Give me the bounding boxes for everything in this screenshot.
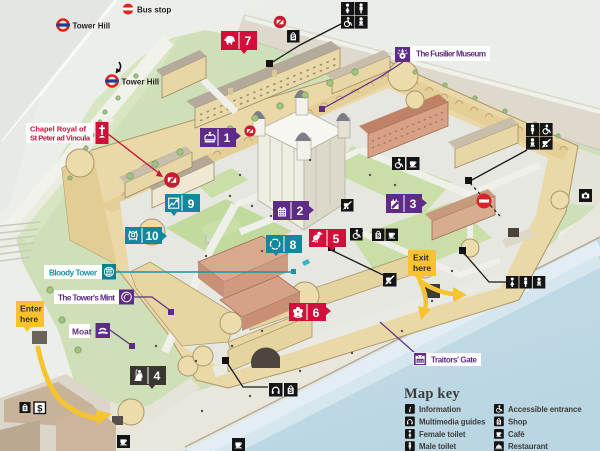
svg-text:Traitors' Gate: Traitors' Gate — [431, 356, 478, 365]
svg-text:St Peter ad Vincula: St Peter ad Vincula — [30, 134, 91, 143]
svg-text:2: 2 — [297, 204, 304, 218]
svg-text:Café: Café — [508, 430, 525, 439]
svg-text:Tower Hill: Tower Hill — [122, 78, 160, 87]
svg-text:$: $ — [37, 403, 43, 414]
svg-text:here: here — [20, 314, 38, 324]
svg-text:9: 9 — [188, 197, 195, 211]
svg-text:Female toilet: Female toilet — [419, 430, 466, 439]
svg-text:Multimedia guides: Multimedia guides — [419, 418, 486, 427]
svg-text:The Tower's Mint: The Tower's Mint — [58, 294, 115, 303]
svg-text:Exit: Exit — [413, 253, 429, 263]
svg-text:Moat: Moat — [72, 327, 92, 337]
svg-text:Bus stop: Bus stop — [137, 6, 171, 15]
svg-text:Tower Hill: Tower Hill — [73, 22, 111, 31]
svg-text:Shop: Shop — [508, 418, 527, 427]
svg-text:Accessible entrance: Accessible entrance — [508, 405, 582, 414]
svg-text:4: 4 — [154, 369, 161, 383]
svg-text:Restaurant: Restaurant — [508, 442, 548, 451]
svg-text:Male toilet: Male toilet — [419, 442, 457, 451]
svg-text:10: 10 — [146, 231, 159, 243]
svg-text:Bloody Tower: Bloody Tower — [49, 269, 98, 278]
svg-text:7: 7 — [245, 34, 252, 48]
svg-text:1: 1 — [224, 131, 231, 145]
svg-text:Information: Information — [419, 405, 461, 414]
svg-text:The Fusilier Museum: The Fusilier Museum — [416, 50, 486, 59]
svg-text:Chapel Royal of: Chapel Royal of — [30, 125, 87, 134]
svg-text:6: 6 — [313, 306, 320, 320]
svg-text:8: 8 — [290, 238, 297, 252]
svg-text:3: 3 — [410, 197, 417, 211]
svg-text:5: 5 — [333, 232, 340, 246]
svg-text:Enter: Enter — [20, 304, 43, 314]
svg-text:Map key: Map key — [404, 386, 460, 402]
svg-text:here: here — [413, 263, 431, 273]
